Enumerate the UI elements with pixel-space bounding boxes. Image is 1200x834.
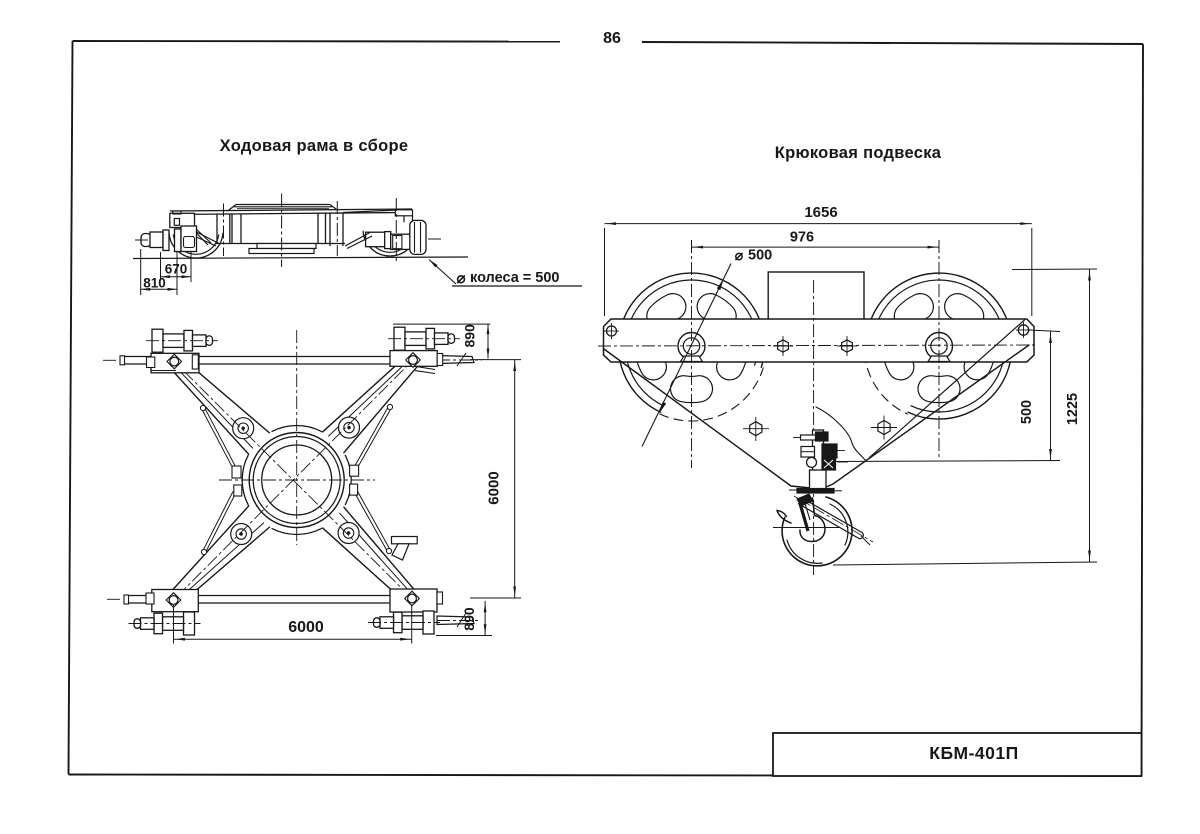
svg-text:КБМ-401П: КБМ-401П (929, 743, 1018, 763)
svg-text:976: 976 (790, 230, 814, 246)
svg-text:500: 500 (1019, 400, 1035, 424)
svg-text:500: 500 (748, 248, 772, 264)
svg-text:Крюковая подвеска: Крюковая подвеска (775, 144, 942, 162)
svg-text:колеса = 500: колеса = 500 (470, 270, 559, 286)
svg-text:⌀: ⌀ (456, 270, 465, 287)
svg-text:1225: 1225 (1065, 393, 1081, 425)
svg-text:86: 86 (603, 30, 621, 47)
svg-text:1656: 1656 (804, 204, 837, 221)
svg-text:6000: 6000 (486, 471, 503, 504)
svg-text:890: 890 (461, 607, 477, 631)
svg-text:670: 670 (165, 262, 188, 277)
svg-text:6000: 6000 (288, 619, 324, 636)
svg-text:⌀: ⌀ (735, 247, 744, 263)
svg-text:Ходовая рама в сборе: Ходовая рама в сборе (220, 137, 409, 155)
svg-text:810: 810 (143, 276, 166, 291)
svg-text:890: 890 (462, 324, 478, 348)
